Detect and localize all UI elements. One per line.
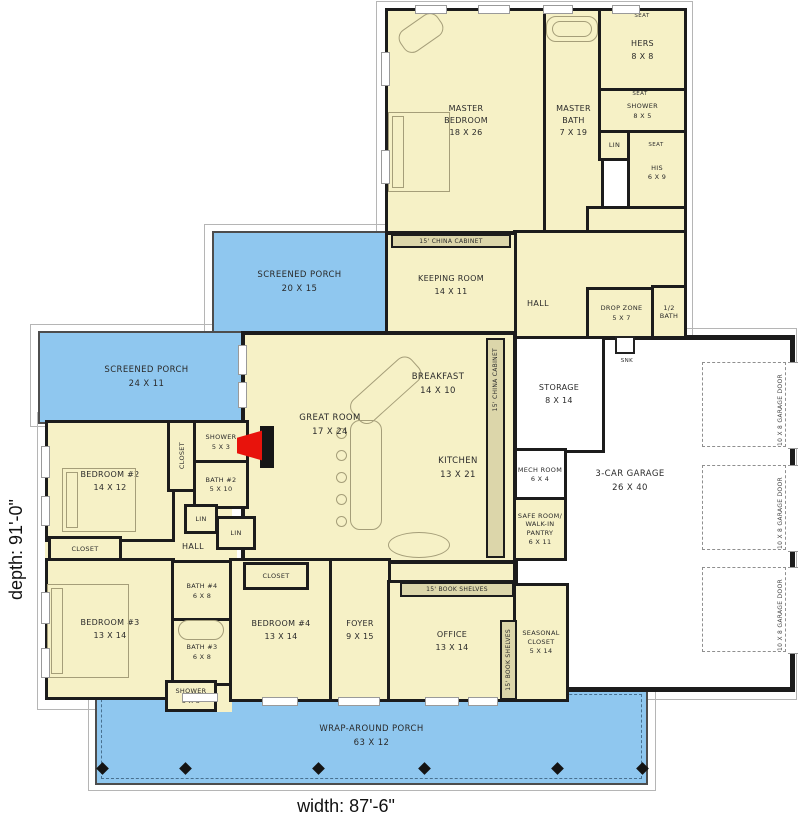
linen-2-label: LIN (230, 529, 241, 537)
safe-room-label: SAFE ROOM/ WALK-IN PANTRY (517, 512, 563, 537)
screened-porch-lower-size: 24 X 11 (129, 378, 165, 392)
width-dimension-label: width: 87'-6" (236, 796, 456, 817)
book-shelves-vertical-label: 15' BOOK SHELVES (505, 629, 512, 691)
door-opening (338, 697, 380, 706)
mech-label: MECH ROOM (518, 466, 562, 474)
window (238, 382, 247, 408)
master-shower-size: 8 X 5 (633, 112, 651, 120)
storage-size: 8 X 14 (545, 395, 573, 407)
seasonal-closet-label: SEASONAL CLOSET (517, 629, 565, 646)
bedroom-2-pillow (66, 472, 78, 528)
hall-top-label: HALL (503, 298, 573, 311)
room-closet-bedroom-4: CLOSET (243, 562, 309, 590)
screened-porch-upper-label: SCREENED PORCH (257, 269, 341, 283)
window (262, 697, 298, 706)
garage-door-1-label: 10 X 8 GARAGE DOOR (777, 363, 784, 446)
bedroom-3-pillow (51, 588, 63, 674)
window (381, 150, 390, 184)
master-linen-label: LIN (609, 141, 620, 149)
garage-door-1-opening (788, 362, 798, 449)
room-hers-closet: HERS 8 X 8 (598, 8, 687, 92)
screened-porch-upper: SCREENED PORCH 20 X 15 (212, 231, 387, 335)
master-bedroom-size: 18 X 26 (449, 127, 482, 139)
bath-3-tub (178, 620, 224, 640)
seasonal-closet-size: 5 X 14 (530, 647, 553, 655)
window (238, 345, 247, 375)
drop-zone-label: DROP ZONE (601, 304, 643, 312)
kitchen-size: 13 X 21 (403, 469, 513, 483)
master-tub-inner (552, 21, 592, 37)
breakfast-label: BREAKFAST 14 X 10 (383, 371, 493, 398)
garage-label: 3-CAR GARAGE 26 X 40 (563, 468, 697, 495)
master-bed-pillow (392, 116, 404, 188)
bath-2-size: 5 X 10 (210, 485, 233, 493)
bedroom-4-label: BEDROOM #4 (251, 618, 310, 630)
screened-porch-upper-size: 20 X 15 (282, 283, 318, 297)
window (543, 5, 573, 14)
fireplace-wall (260, 426, 274, 468)
window (381, 52, 390, 86)
garage-name: 3-CAR GARAGE (563, 468, 697, 482)
great-room-label: GREAT ROOM 17 X 24 (265, 412, 395, 439)
window (41, 648, 50, 678)
bath-4-label: BATH #4 (186, 582, 217, 590)
master-bath-label: MASTER BATH (546, 103, 601, 126)
room-mech: MECH ROOM 6 X 4 (513, 448, 567, 501)
keeping-size: 14 X 11 (434, 286, 467, 298)
shower-bath-2-size: 5 X 3 (212, 443, 230, 451)
screened-porch-lower-label: SCREENED PORCH (104, 364, 188, 378)
screened-porch-lower: SCREENED PORCH 24 X 11 (38, 331, 255, 424)
bath-3-label: BATH #3 (186, 643, 217, 651)
half-bath-label: 1/2 BATH (658, 304, 680, 321)
room-office: OFFICE 13 X 14 (387, 580, 517, 702)
his-label: HIS (651, 164, 663, 172)
great-room-name: GREAT ROOM (265, 412, 395, 426)
room-safe-room: SAFE ROOM/ WALK-IN PANTRY 6 X 11 (513, 497, 567, 561)
room-keeping: KEEPING ROOM 14 X 11 (385, 232, 517, 339)
breakfast-table (388, 532, 450, 558)
great-room-size: 17 X 24 (265, 426, 395, 440)
window (468, 697, 498, 706)
china-cabinet-vertical-label: 15' CHINA CABINET (492, 348, 499, 411)
linen-1-label: LIN (195, 515, 206, 523)
keeping-label: KEEPING ROOM (418, 273, 484, 285)
kitchen-name: KITCHEN (403, 455, 513, 469)
room-half-bath: 1/2 BATH (651, 285, 687, 339)
sink-icon (615, 336, 635, 354)
depth-dimension-label: depth: 91'-0" (6, 420, 27, 600)
china-cabinet-label: 15' CHINA CABINET (419, 238, 482, 245)
his-size: 6 X 9 (648, 173, 666, 181)
window (182, 693, 218, 702)
book-shelves-strip: 15' BOOK SHELVES (400, 582, 514, 597)
safe-room-size: 6 X 11 (529, 538, 552, 546)
drop-zone-size: 5 X 7 (612, 314, 630, 322)
room-foyer: FOYER 9 X 15 (329, 558, 391, 702)
his-seat-label: SEAT (632, 142, 680, 148)
sink-label: SNK (605, 357, 649, 366)
book-shelves-vertical-strip: 15' BOOK SHELVES (500, 620, 517, 700)
window (41, 592, 50, 624)
closet-bedroom-2-label: CLOSET (178, 442, 186, 469)
island-stool (336, 450, 347, 461)
wrap-porch-label: WRAP-AROUND PORCH (319, 723, 423, 737)
bath-3-size: 6 X 8 (193, 653, 211, 661)
master-shower-label: SHOWER (627, 102, 658, 110)
shower-seat-label: SEAT (604, 91, 676, 97)
china-cabinet-strip: 15' CHINA CABINET (391, 234, 511, 248)
room-storage: STORAGE 8 X 14 (513, 335, 605, 453)
wrap-porch-size: 63 X 12 (354, 737, 390, 751)
garage-door-3: 10 X 8 GARAGE DOOR (702, 567, 786, 652)
room-bath-2: BATH #2 5 X 10 (193, 460, 249, 509)
garage-door-2-opening (788, 465, 798, 552)
room-seasonal-closet: SEASONAL CLOSET 5 X 14 (513, 583, 569, 702)
bath-2-label: BATH #2 (205, 476, 236, 484)
bath-4-size: 6 X 8 (193, 592, 211, 600)
foyer-label: FOYER (346, 618, 373, 630)
room-linen-1: LIN (184, 504, 218, 534)
hers-label: HERS (631, 38, 654, 50)
window (41, 446, 50, 478)
garage-door-1: 10 X 8 GARAGE DOOR (702, 362, 786, 447)
window (612, 5, 640, 14)
garage-door-3-label: 10 X 8 GARAGE DOOR (777, 568, 784, 651)
room-bath-4: BATH #4 6 X 8 (171, 560, 233, 622)
office-size: 13 X 14 (435, 642, 468, 654)
master-bath-size: 7 X 19 (560, 127, 588, 139)
window (478, 5, 510, 14)
storage-label: STORAGE (539, 382, 579, 394)
garage-door-2-label: 10 X 8 GARAGE DOOR (777, 466, 784, 549)
closet-bedroom-3-label: CLOSET (71, 545, 98, 553)
hall-bedrooms-label: HALL (158, 541, 228, 554)
garage-door-3-opening (788, 567, 798, 654)
book-shelves-label: 15' BOOK SHELVES (426, 586, 488, 593)
hers-size: 8 X 8 (631, 51, 653, 63)
breakfast-name: BREAKFAST (383, 371, 493, 385)
shower-bath-2-label: SHOWER (206, 433, 237, 441)
foyer-size: 9 X 15 (346, 631, 374, 643)
bedroom-4-size: 13 X 14 (264, 631, 297, 643)
closet-bedroom-4-label: CLOSET (262, 572, 289, 580)
window (415, 5, 447, 14)
garage-door-2: 10 X 8 GARAGE DOOR (702, 465, 786, 550)
island-stool (336, 494, 347, 505)
mech-size: 6 X 4 (531, 475, 549, 483)
office-label: OFFICE (437, 629, 467, 641)
window (425, 697, 459, 706)
kitchen-label: KITCHEN 13 X 21 (403, 455, 513, 482)
island-stool (336, 472, 347, 483)
garage-size: 26 X 40 (563, 482, 697, 496)
breakfast-size: 14 X 10 (383, 385, 493, 399)
floor-plan: SCREENED PORCH 20 X 15 SCREENED PORCH 24… (0, 0, 800, 824)
window (41, 496, 50, 526)
island-stool (336, 516, 347, 527)
room-drop-zone: DROP ZONE 5 X 7 (586, 287, 657, 339)
